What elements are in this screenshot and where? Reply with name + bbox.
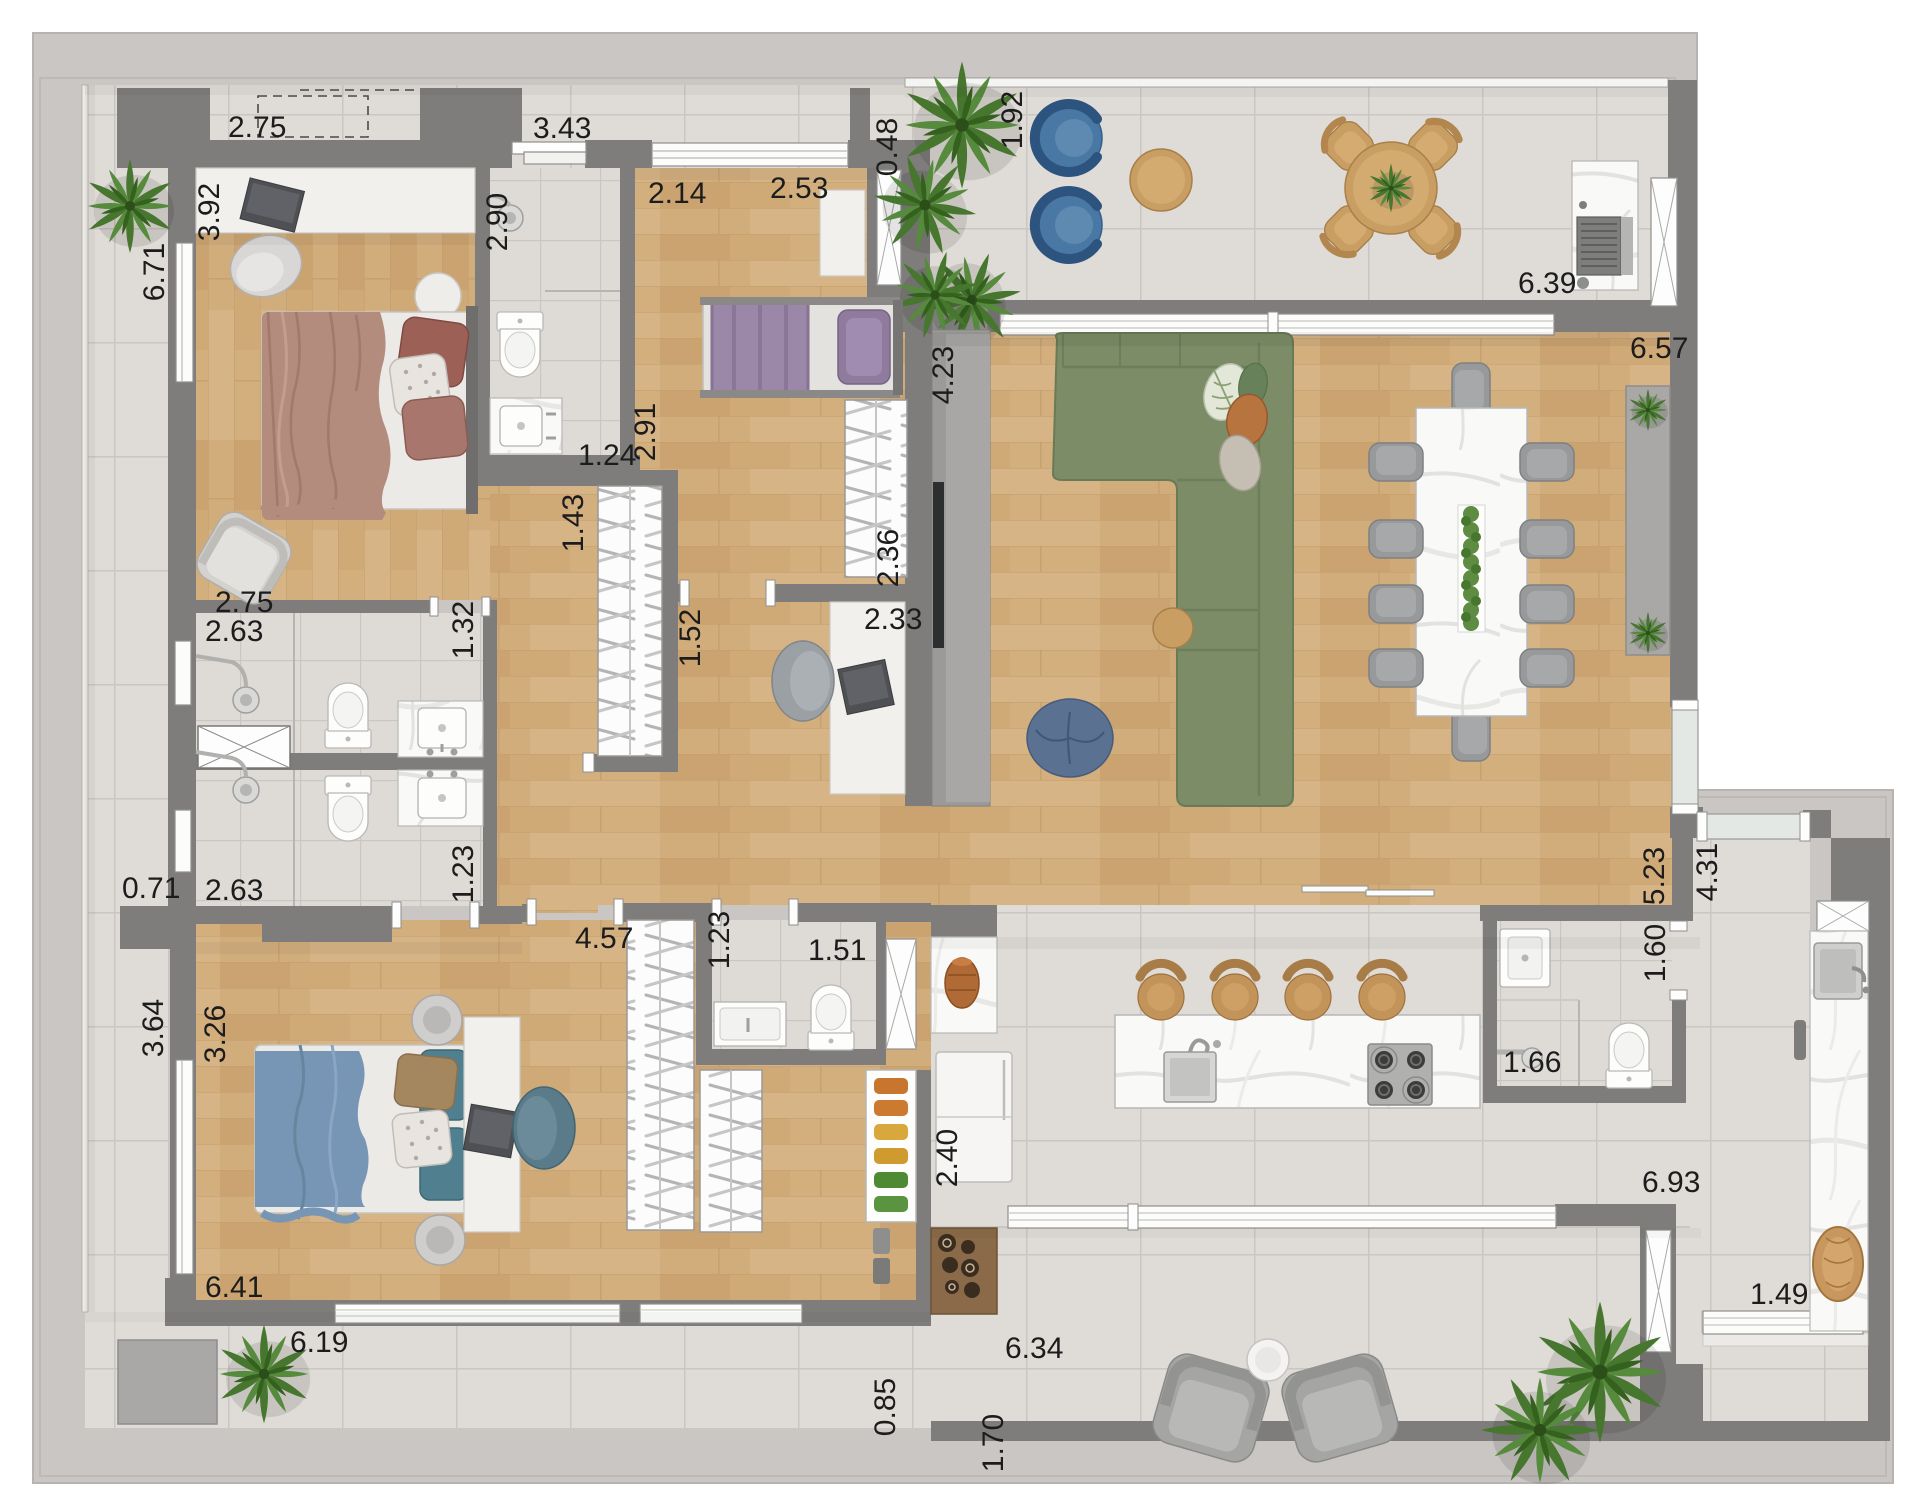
svg-text:1.52: 1.52 <box>674 609 707 667</box>
svg-text:1.23: 1.23 <box>703 911 736 969</box>
svg-text:1.49: 1.49 <box>1750 1278 1808 1311</box>
svg-text:4.57: 4.57 <box>575 922 633 955</box>
svg-text:1.43: 1.43 <box>557 494 590 552</box>
svg-text:4.23: 4.23 <box>927 346 960 404</box>
svg-text:6.39: 6.39 <box>1518 267 1576 300</box>
svg-text:6.19: 6.19 <box>290 1326 348 1359</box>
svg-text:1.66: 1.66 <box>1503 1046 1561 1079</box>
svg-text:3.92: 3.92 <box>193 183 226 241</box>
svg-text:2.91: 2.91 <box>629 403 662 461</box>
svg-text:4.31: 4.31 <box>1691 843 1724 901</box>
svg-text:2.63: 2.63 <box>205 615 263 648</box>
svg-text:6.93: 6.93 <box>1642 1166 1700 1199</box>
svg-text:1.24: 1.24 <box>578 439 636 472</box>
svg-text:0.85: 0.85 <box>869 1378 902 1436</box>
svg-text:2.33: 2.33 <box>864 603 922 636</box>
svg-text:6.71: 6.71 <box>138 243 171 301</box>
svg-text:2.14: 2.14 <box>648 177 706 210</box>
svg-text:1.32: 1.32 <box>447 601 480 659</box>
svg-text:2.75: 2.75 <box>228 111 286 144</box>
svg-text:6.57: 6.57 <box>1630 332 1688 365</box>
svg-text:1.92: 1.92 <box>996 91 1029 149</box>
svg-text:1.51: 1.51 <box>808 934 866 967</box>
svg-text:6.34: 6.34 <box>1005 1332 1063 1365</box>
svg-text:2.53: 2.53 <box>770 172 828 205</box>
svg-text:3.26: 3.26 <box>199 1005 232 1063</box>
svg-text:3.43: 3.43 <box>533 112 591 145</box>
svg-text:6.41: 6.41 <box>205 1271 263 1304</box>
svg-text:2.36: 2.36 <box>872 529 905 587</box>
svg-text:3.64: 3.64 <box>137 999 170 1057</box>
svg-text:0.71: 0.71 <box>122 872 180 905</box>
svg-text:5.23: 5.23 <box>1638 847 1671 905</box>
svg-text:2.40: 2.40 <box>931 1129 964 1187</box>
svg-text:1.70: 1.70 <box>977 1414 1010 1472</box>
svg-text:0.48: 0.48 <box>871 118 904 176</box>
svg-text:2.63: 2.63 <box>205 874 263 907</box>
svg-text:1.23: 1.23 <box>447 845 480 903</box>
svg-text:2.90: 2.90 <box>481 193 514 251</box>
svg-text:1.60: 1.60 <box>1639 924 1672 982</box>
